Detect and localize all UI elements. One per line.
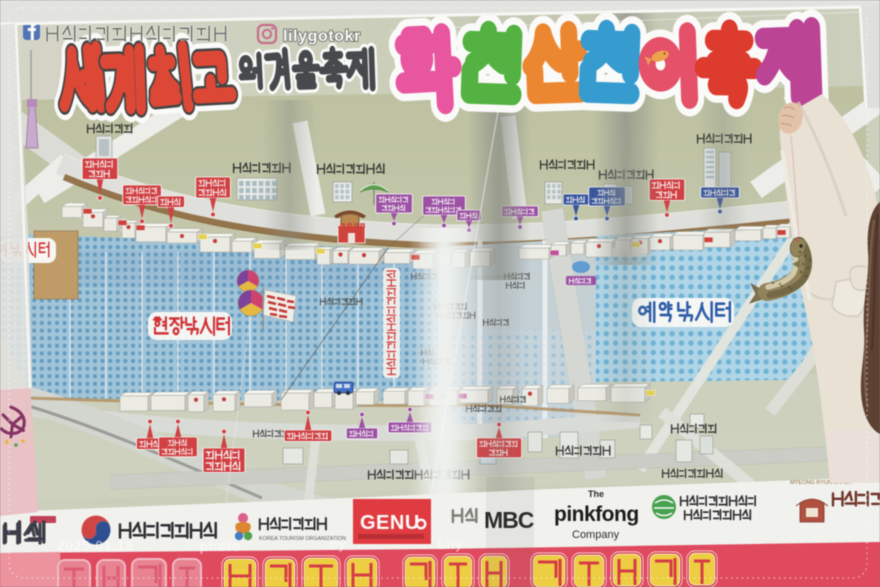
svg-text:photo: photo — [200, 539, 241, 554]
svg-text:2025.01.18: 2025.01.18 — [57, 538, 134, 553]
svg-text:by: by — [330, 537, 347, 552]
svg-text:Lily: Lily — [438, 537, 464, 552]
